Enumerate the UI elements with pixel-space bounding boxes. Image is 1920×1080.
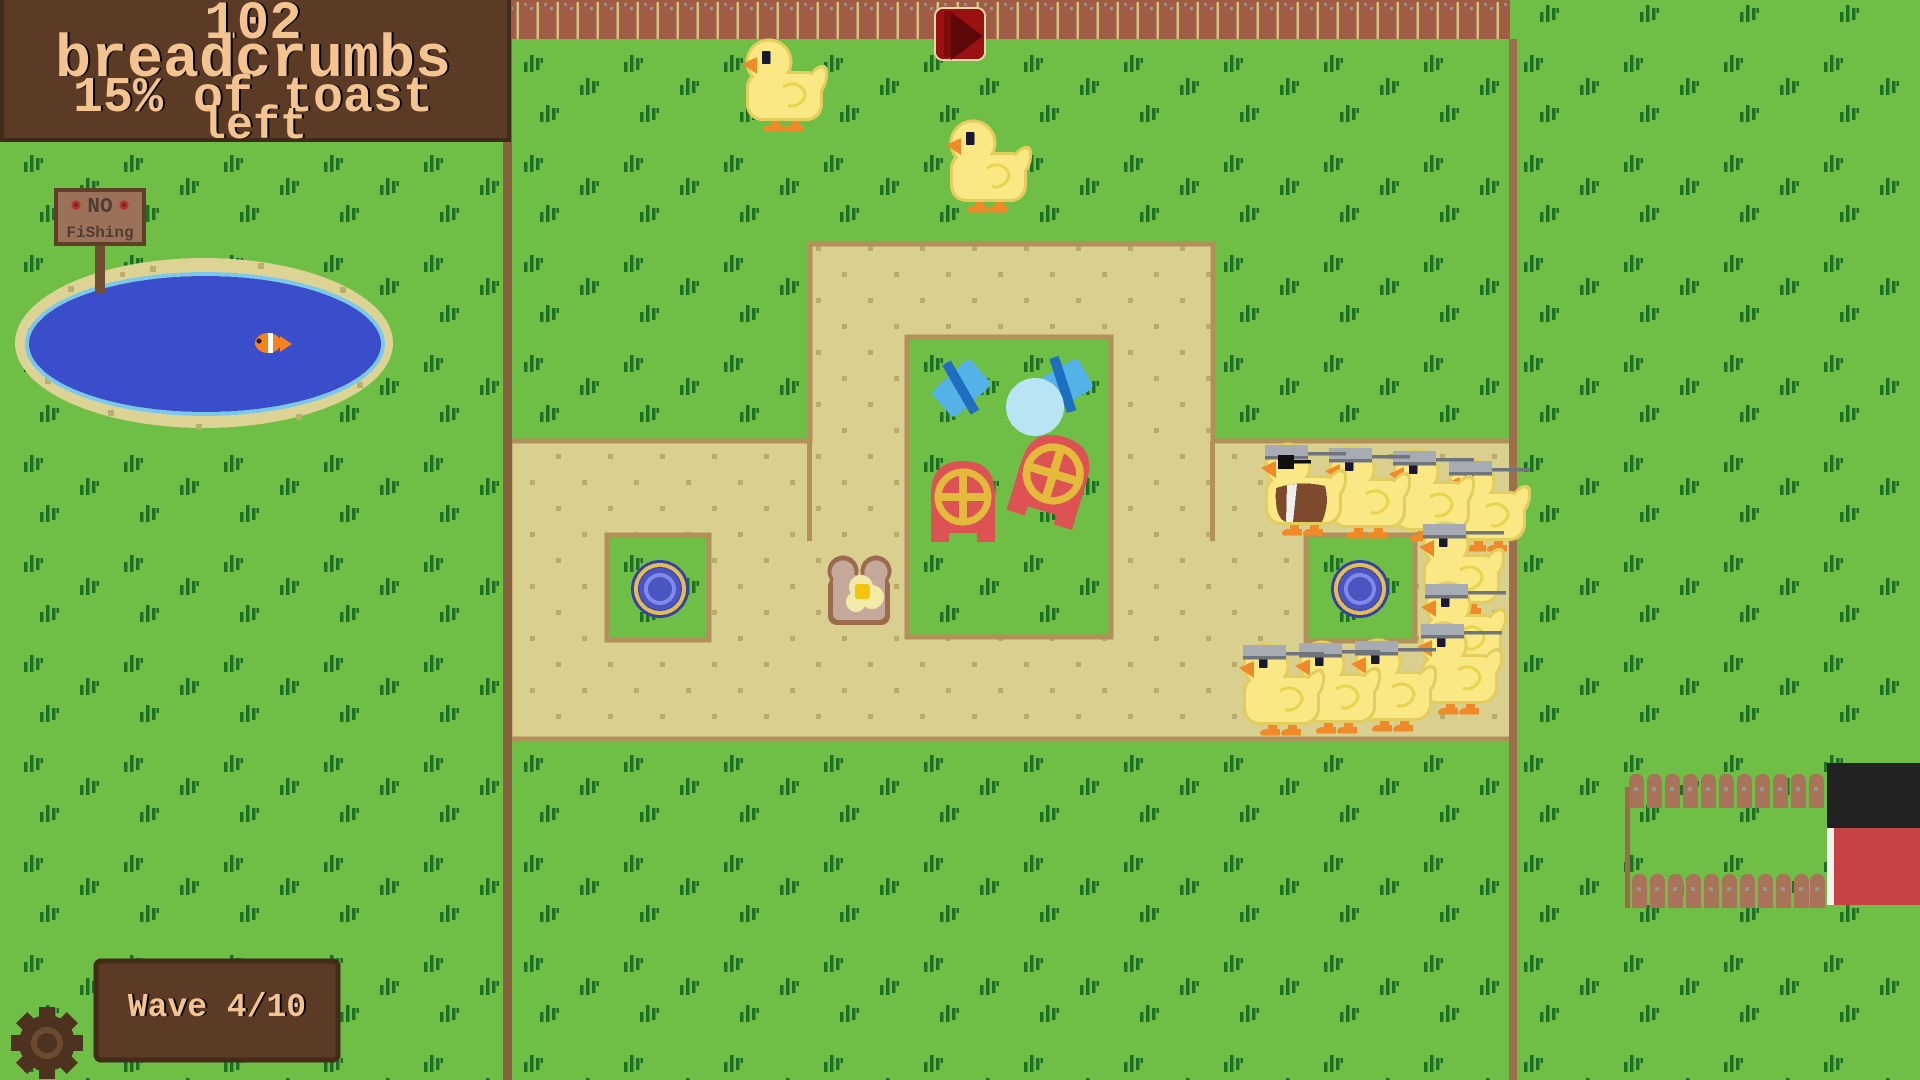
svg-text:left: left bbox=[199, 101, 307, 152]
svg-text:Wave 4/10: Wave 4/10 bbox=[128, 989, 306, 1026]
svg-text:NO: NO bbox=[87, 196, 112, 219]
svg-text:FiShing: FiShing bbox=[66, 224, 133, 242]
